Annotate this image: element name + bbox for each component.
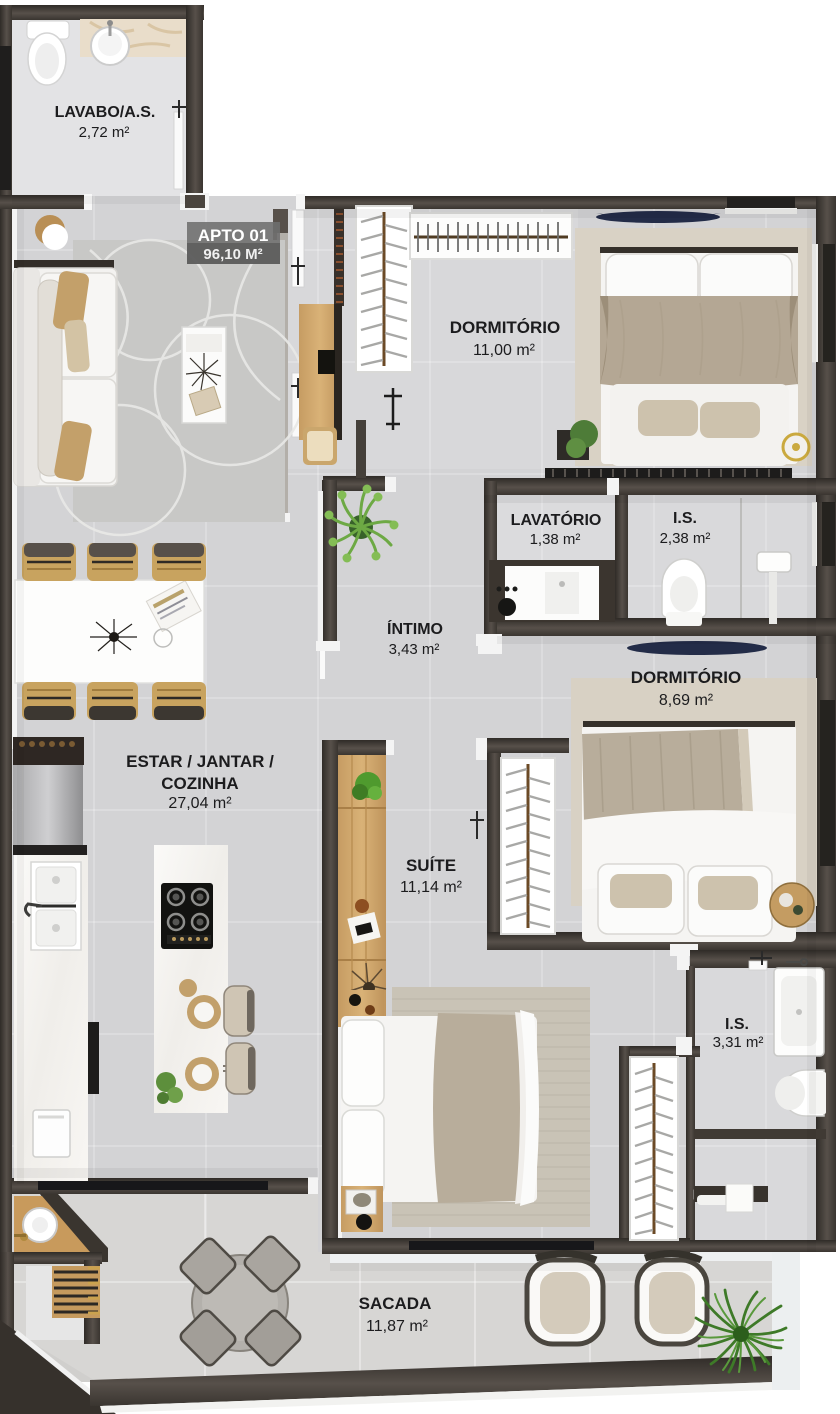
svg-text:2,72 m²: 2,72 m²	[79, 124, 130, 141]
svg-text:SACADA: SACADA	[359, 1294, 432, 1313]
svg-text:96,10 M²: 96,10 M²	[203, 246, 262, 263]
svg-text:ESTAR / JANTAR /: ESTAR / JANTAR /	[126, 752, 274, 771]
svg-text:8,69 m²: 8,69 m²	[659, 692, 714, 709]
svg-text:2,38 m²: 2,38 m²	[660, 530, 711, 547]
svg-text:LAVABO/A.S.: LAVABO/A.S.	[55, 104, 156, 121]
svg-text:I.S.: I.S.	[725, 1016, 749, 1033]
svg-text:3,43 m²: 3,43 m²	[389, 641, 440, 658]
svg-text:11,87 m²: 11,87 m²	[366, 1318, 429, 1335]
svg-text:APTO 01: APTO 01	[198, 226, 269, 245]
svg-text:11,14 m²: 11,14 m²	[400, 879, 463, 896]
svg-text:LAVATÓRIO: LAVATÓRIO	[511, 510, 602, 529]
svg-text:COZINHA: COZINHA	[161, 774, 238, 793]
svg-text:SUÍTE: SUÍTE	[406, 856, 456, 875]
svg-text:DORMITÓRIO: DORMITÓRIO	[631, 668, 742, 687]
svg-text:1,38 m²: 1,38 m²	[530, 531, 581, 548]
svg-text:DORMITÓRIO: DORMITÓRIO	[450, 318, 561, 337]
svg-text:I.S.: I.S.	[673, 510, 697, 527]
svg-text:ÍNTIMO: ÍNTIMO	[387, 619, 443, 638]
svg-text:11,00 m²: 11,00 m²	[473, 342, 536, 359]
svg-text:27,04 m²: 27,04 m²	[168, 795, 232, 812]
svg-text:3,31 m²: 3,31 m²	[713, 1034, 764, 1051]
